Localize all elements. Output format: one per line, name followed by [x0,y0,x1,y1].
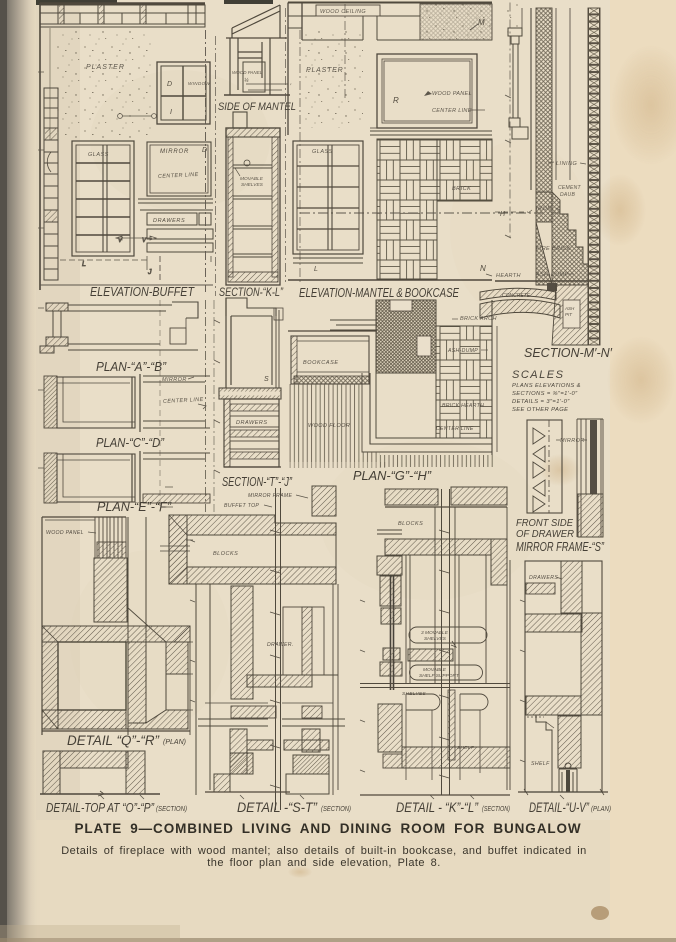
svg-text:ASH: ASH [564,306,575,311]
svg-text:R: R [393,96,399,105]
svg-text:SHELF SUPPORT: SHELF SUPPORT [419,673,460,679]
svg-text:(SECTION): (SECTION) [482,806,510,813]
svg-text:D: D [202,147,207,154]
svg-text:MIRROR FRAME: MIRROR FRAME [248,493,292,499]
svg-text:DETAIL-TOP AT “O”-“P”: DETAIL-TOP AT “O”-“P” [46,801,155,815]
svg-text:DETAILS = 3″=1′-0″: DETAILS = 3″=1′-0″ [512,399,570,405]
svg-text:CENTER LINE: CENTER LINE [432,108,472,114]
svg-text:L: L [82,261,86,268]
svg-text:CONCRETE: CONCRETE [502,293,531,299]
svg-text:ASH-DUMP: ASH-DUMP [447,348,478,354]
svg-text:(PLAN): (PLAN) [591,806,611,813]
svg-text:M: M [478,18,485,27]
svg-text:SCALES: SCALES [512,369,564,381]
svg-text:PLAN-“E”-“F”: PLAN-“E”-“F” [97,499,172,514]
svg-text:DRAWER.: DRAWER. [267,642,294,648]
svg-text:HEARTH: HEARTH [496,273,521,279]
svg-text:S: S [264,376,269,383]
svg-text:¼: ¼ [244,78,249,84]
svg-text:SHELF: SHELF [531,761,550,767]
svg-text:LINING: LINING [556,161,578,167]
svg-text:DETAIL “Q”-“R”: DETAIL “Q”-“R” [67,733,159,748]
svg-text:WOOD PANEL: WOOD PANEL [432,91,472,97]
svg-text:J: J [147,269,152,276]
svg-text:WOOD CEILING: WOOD CEILING [320,9,366,15]
svg-text:BRICK ARCH: BRICK ARCH [460,316,497,322]
svg-text:MOVABLE: MOVABLE [423,667,447,673]
svg-text:the floor plan and side elevat: the floor plan and side elevation, Plate… [207,857,441,869]
svg-text:BLOCKS: BLOCKS [398,521,423,527]
svg-text:MIRROR FRAME-“S”: MIRROR FRAME-“S” [516,539,604,554]
svg-text:SHELVES: SHELVES [241,182,264,188]
svg-text:Details of fireplace with wood: Details of fireplace with wood mantel; a… [61,845,587,857]
svg-text:ELEVATION-BUFFET: ELEVATION-BUFFET [90,284,195,299]
svg-text:PIT: PIT [565,312,573,317]
svg-text:L: L [314,266,318,273]
svg-text:SECTION-“T”-“J”: SECTION-“T”-“J” [222,474,292,489]
svg-text:(SECTION): (SECTION) [321,806,351,813]
svg-text:BUFFET TOP: BUFFET TOP [224,503,259,509]
svg-text:N: N [480,264,486,273]
svg-text:D: D [167,81,172,88]
svg-text:DAUB: DAUB [560,192,575,198]
svg-text:GLASS: GLASS [88,152,109,158]
svg-text:PLATE 9—COMBINED LIVING AND DI: PLATE 9—COMBINED LIVING AND DINING ROOM … [74,821,581,836]
svg-text:MIRROR: MIRROR [162,377,187,383]
svg-text:SHELVES: SHELVES [424,636,447,642]
svg-text:PLASTER: PLASTER [306,67,344,74]
svg-text:CEMENT: CEMENT [558,185,582,191]
svg-text:SECTION-M′-N′: SECTION-M′-N′ [524,345,613,360]
svg-text:SEE OTHER PAGE: SEE OTHER PAGE [512,407,568,413]
svg-text:SECTIONS = ⅜″=1′-0″: SECTIONS = ⅜″=1′-0″ [512,391,578,397]
svg-text:PLAN-“C”-“D”: PLAN-“C”-“D” [96,435,165,450]
svg-text:MOVABLE: MOVABLE [240,176,264,182]
svg-text:GLASS: GLASS [312,149,333,155]
svg-text:I: I [170,109,172,116]
svg-text:WINDOW: WINDOW [188,81,210,86]
svg-text:DETAIL - “K”-“L”: DETAIL - “K”-“L” [396,800,478,815]
svg-text:FIRE BRICK: FIRE BRICK [536,246,571,252]
svg-text:BOOKCASE: BOOKCASE [303,360,339,366]
svg-text:BRICK HEARTH: BRICK HEARTH [442,403,484,409]
svg-text:IRON: IRON [536,206,552,212]
svg-text:PLAN-“G”-“H”: PLAN-“G”-“H” [353,468,432,483]
svg-text:MIRROR: MIRROR [160,149,189,155]
svg-text:PLANS ELEVATIONS &: PLANS ELEVATIONS & [512,383,581,389]
svg-text:SECTION-“K-L”: SECTION-“K-L” [219,287,284,299]
svg-text:(PLAN): (PLAN) [163,739,186,746]
svg-text:DETAIL -“S-T”: DETAIL -“S-T” [237,800,317,815]
svg-text:(SECTION): (SECTION) [156,806,187,813]
svg-text:DRAWERS: DRAWERS [236,420,268,426]
svg-text:CENTER LINE: CENTER LINE [436,426,474,432]
svg-text:ASH-DUMP: ASH-DUMP [535,272,569,278]
svg-text:WOOD PANEL: WOOD PANEL [46,530,84,536]
svg-text:DRAWERS: DRAWERS [529,575,558,581]
svg-text:BLOCKS: BLOCKS [213,551,238,557]
svg-text:SIDE OF MANTEL: SIDE OF MANTEL [218,101,296,113]
svg-text:WOOD FLOOR: WOOD FLOOR [308,423,350,429]
svg-text:WOOD PANEL: WOOD PANEL [232,70,263,75]
svg-text:ELEVATION-MANTEL & BOOKCASE: ELEVATION-MANTEL & BOOKCASE [299,285,459,300]
svg-text:DETAIL-“U-V”: DETAIL-“U-V” [529,800,589,815]
svg-text:PLASTER: PLASTER [86,64,125,71]
svg-text:BRICK: BRICK [452,186,471,192]
svg-text:PLAN-“A”-“B”: PLAN-“A”-“B” [96,359,167,374]
svg-text:DRAWERS: DRAWERS [153,218,185,224]
svg-text:3 MOVABLE: 3 MOVABLE [421,630,449,636]
